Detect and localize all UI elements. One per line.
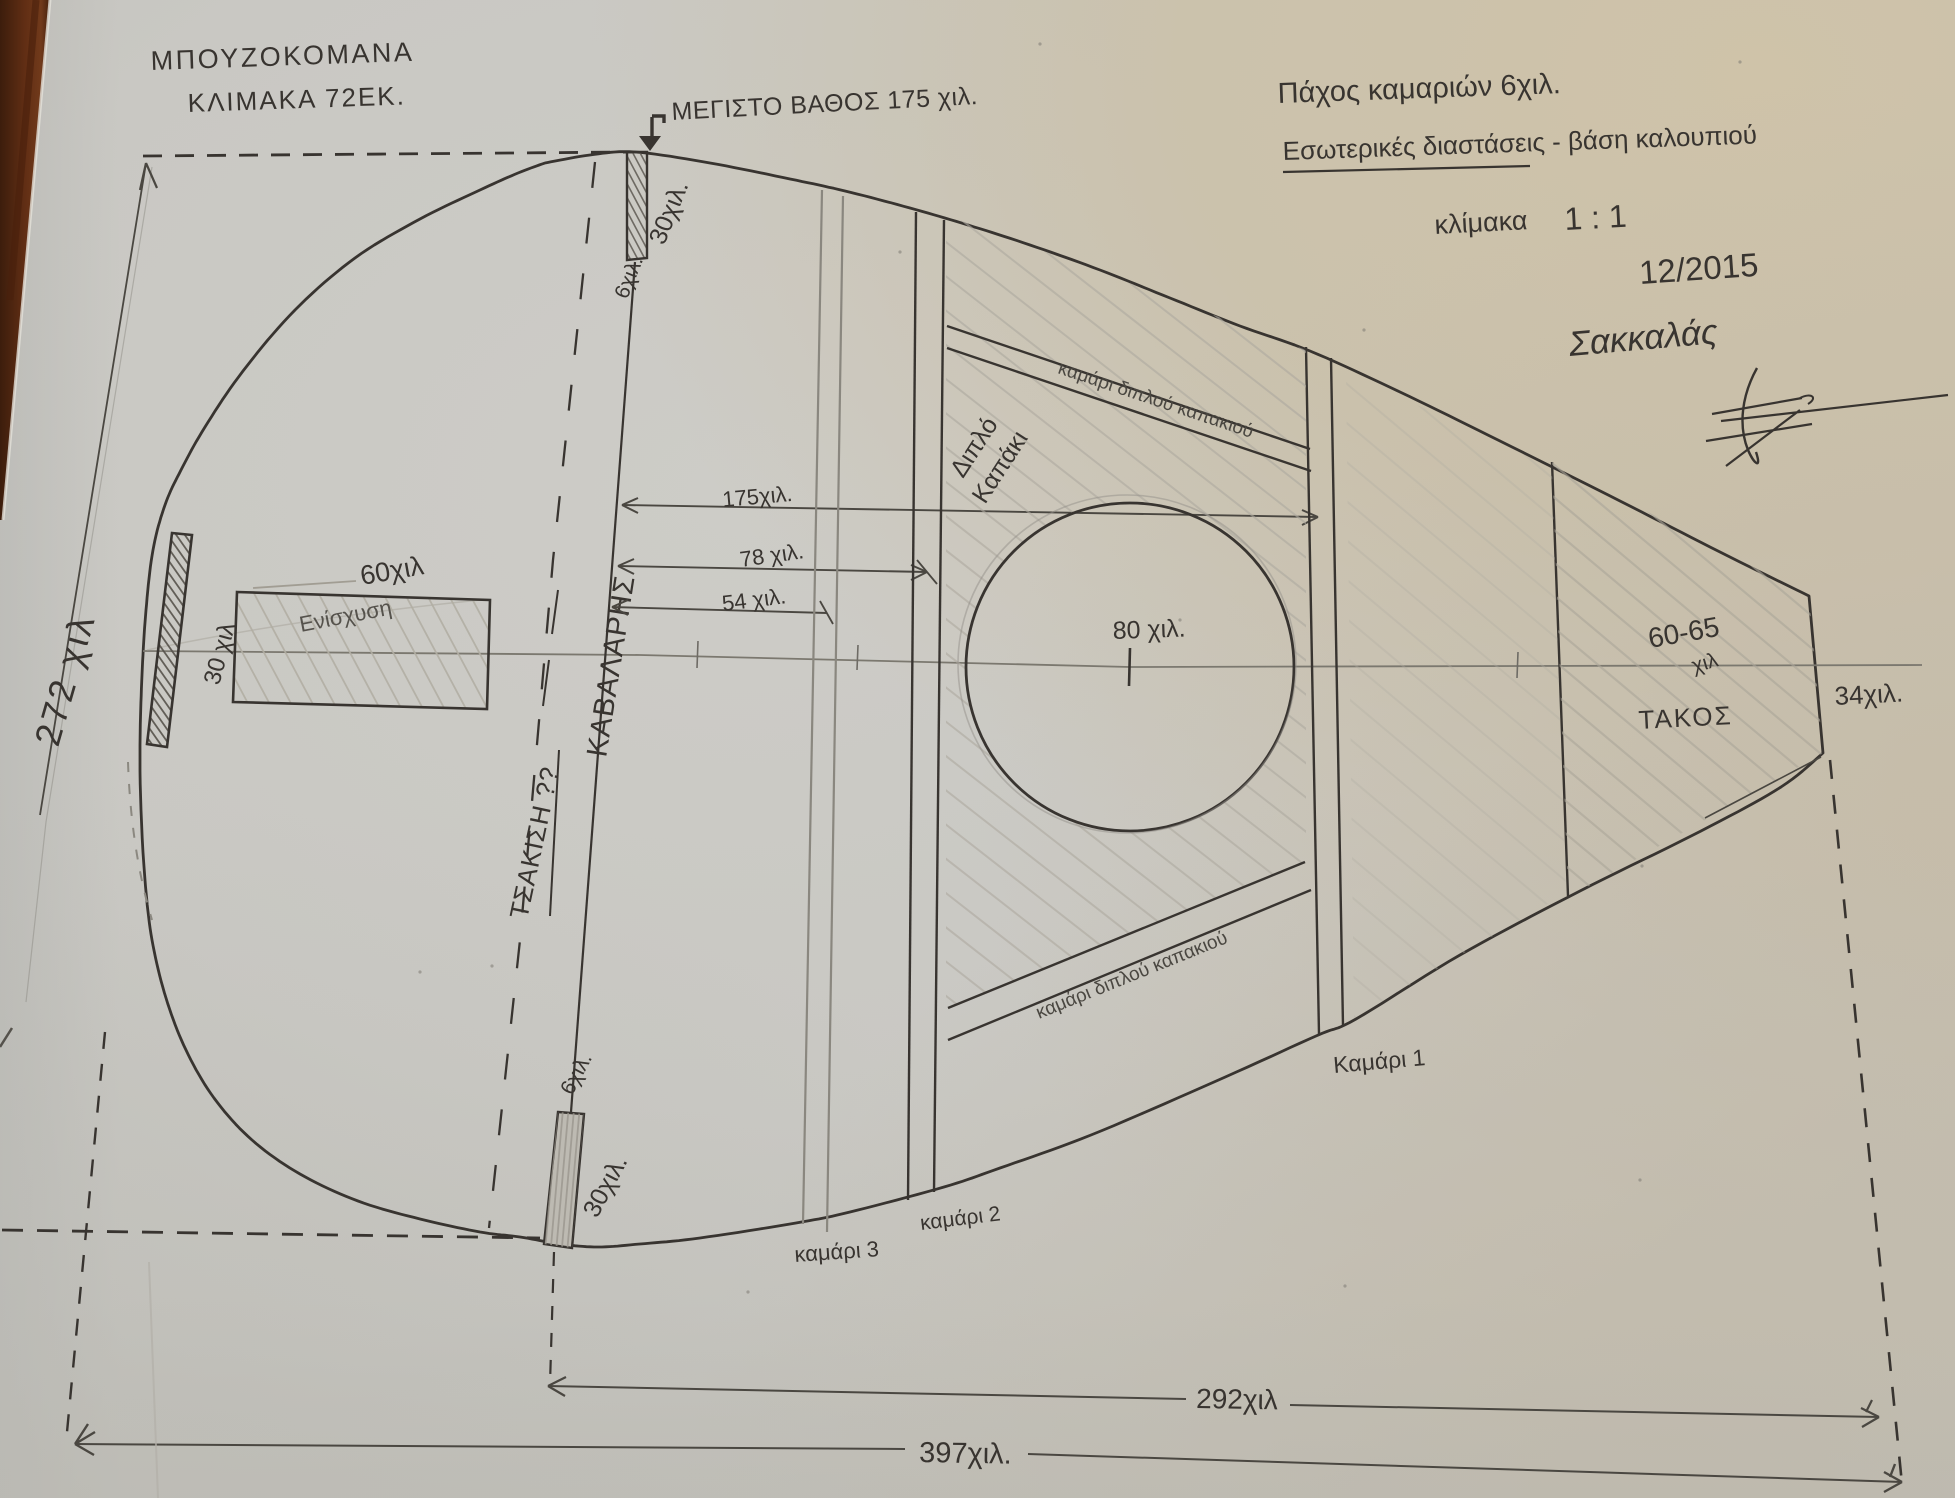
svg-text:34χιλ.: 34χιλ. (1834, 677, 1904, 711)
svg-text:292χιλ: 292χιλ (1196, 1383, 1278, 1415)
svg-text:ΤΑΚΟΣ: ΤΑΚΟΣ (1638, 700, 1734, 735)
svg-text:80 χιλ.: 80 χιλ. (1112, 614, 1186, 645)
svg-text:397χιλ.: 397χιλ. (919, 1437, 1012, 1471)
svg-text:κλίμακα: κλίμακα (1434, 205, 1528, 240)
svg-text:1 : 1: 1 : 1 (1563, 198, 1627, 237)
